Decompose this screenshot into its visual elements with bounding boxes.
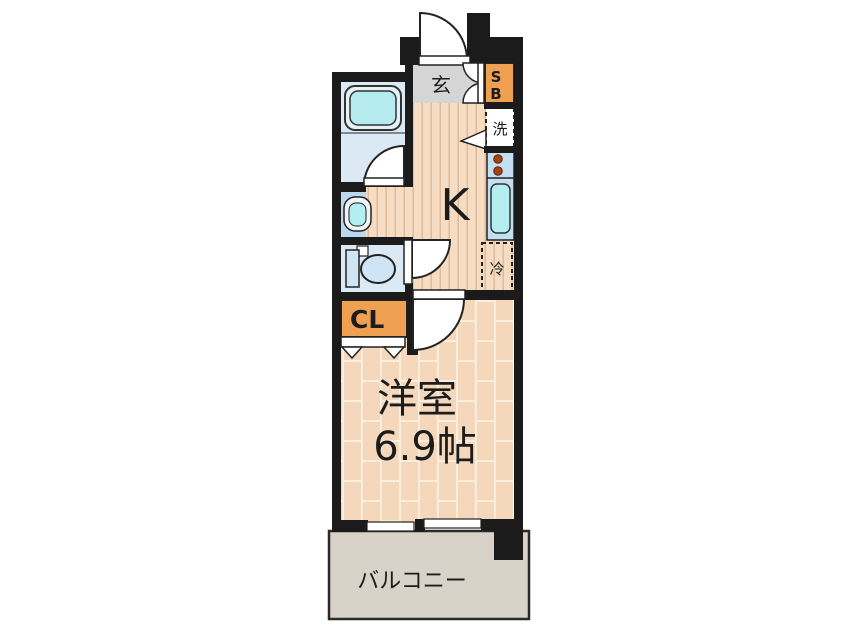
room-name-label: 洋室 [377, 376, 457, 422]
bathroom-door-leaf [364, 178, 404, 186]
wall-segment [494, 522, 523, 560]
washer-label: 洗 [492, 120, 507, 138]
shoe-box-label-s: S [491, 68, 502, 86]
balcony-label: バルコニー [357, 569, 467, 594]
wall-segment [332, 292, 418, 300]
wall-segment [484, 146, 523, 153]
closet-door-bar [341, 337, 405, 347]
fridge-label: 冷 [489, 260, 504, 278]
wall-segment [332, 237, 413, 245]
shoe-box-door-leaf [478, 63, 484, 103]
stove-burner-icon [494, 167, 502, 175]
toilet-bowl-icon [361, 255, 395, 283]
wall-segment [484, 102, 515, 109]
entrance-label: 玄 [431, 73, 451, 97]
bathtub-icon [350, 91, 396, 125]
balcony-window-panel [367, 522, 414, 531]
wall-segment [332, 182, 366, 192]
shoe-box-label-b: B [490, 85, 501, 103]
hall-floor [366, 187, 413, 237]
wall-segment [405, 82, 413, 187]
room-size-label: 6.9帖 [373, 424, 477, 470]
balcony-window-panel [424, 519, 481, 528]
toilet-tank-icon [346, 250, 359, 287]
toilet-door-leaf [404, 240, 412, 284]
room-door-leaf [413, 290, 465, 299]
closet-label: CL [350, 305, 384, 334]
floorplan-svg: バルコニー S B 洗 冷 [0, 0, 846, 634]
wall-segment [332, 72, 341, 532]
wall-segment [332, 72, 413, 82]
kitchen-sink-icon [491, 184, 510, 233]
entrance-door-arc [420, 13, 467, 60]
shoe-box: S B [485, 63, 514, 103]
wall-segment [332, 520, 368, 532]
toilet-room [341, 245, 405, 292]
kitchen-label: K [441, 180, 471, 231]
floorplan-image: バルコニー S B 洗 冷 [0, 0, 846, 634]
wall-segment [514, 37, 523, 522]
washbasin-bowl-icon [349, 203, 366, 226]
kitchen-fixtures [487, 150, 514, 240]
stove-burner-icon [494, 155, 502, 163]
